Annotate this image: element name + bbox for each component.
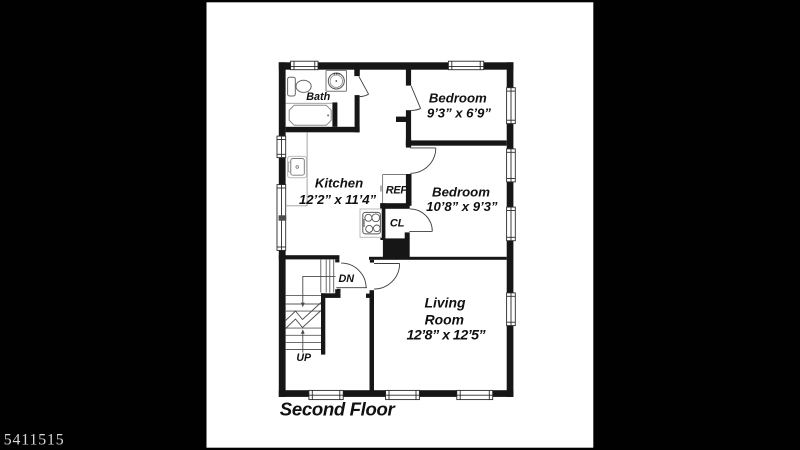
svg-text:CL: CL: [390, 217, 405, 229]
svg-text:5411515: 5411515: [4, 432, 65, 449]
svg-text:Bedroom: Bedroom: [432, 184, 490, 199]
svg-text:DN: DN: [338, 273, 354, 285]
svg-text:Room: Room: [425, 311, 464, 327]
svg-text:Kitchen: Kitchen: [315, 175, 363, 190]
svg-text:12’8” x 12’5”: 12’8” x 12’5”: [406, 327, 486, 343]
svg-text:UP: UP: [296, 352, 312, 364]
svg-text:9’3” x 6’9”: 9’3” x 6’9”: [427, 106, 491, 121]
svg-text:REF: REF: [386, 185, 408, 197]
svg-text:12’2” x 11’4”: 12’2” x 11’4”: [299, 192, 376, 207]
svg-text:Bedroom: Bedroom: [429, 91, 487, 106]
svg-text:10’8” x 9’3”: 10’8” x 9’3”: [426, 199, 498, 214]
svg-text:Second Floor: Second Floor: [280, 399, 397, 420]
svg-text:Bath: Bath: [306, 91, 330, 103]
svg-text:Living: Living: [425, 295, 466, 311]
